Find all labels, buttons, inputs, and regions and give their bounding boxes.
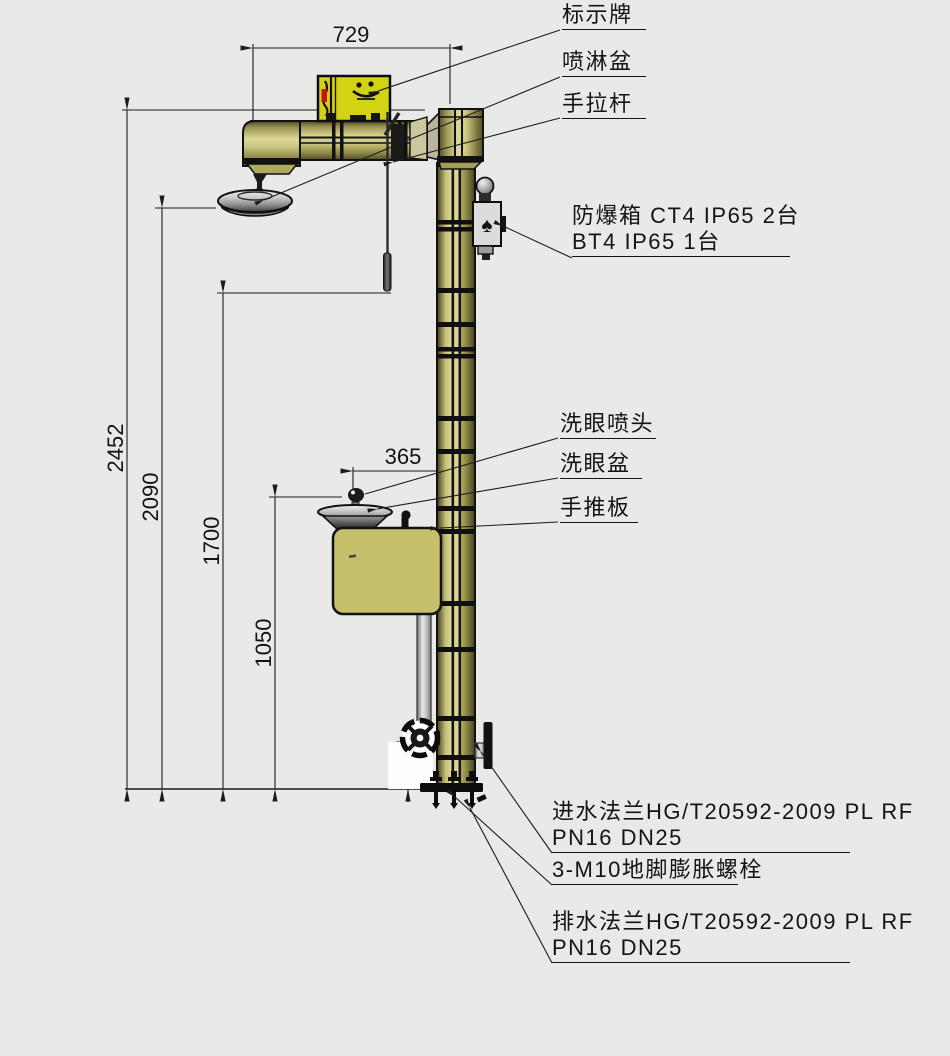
- dim-2090: [155, 208, 216, 789]
- shower-eyewash-drawing: 729 365 2452 2090 1700 1050 135: [0, 0, 950, 1056]
- support-column: [436, 162, 476, 789]
- label-shower-basin-text: 喷淋盆: [562, 49, 646, 75]
- inlet-flange: [475, 722, 493, 769]
- dim-365: [353, 467, 448, 491]
- label-drain-flange-line1: 排水法兰HG/T20592-2009 PL RF: [552, 909, 850, 935]
- label-eyewash-nozzle: 洗眼喷头: [560, 411, 656, 439]
- top-elbow: [427, 109, 483, 169]
- shower-elbow: [243, 121, 300, 196]
- spade-icon: ♠: [481, 214, 492, 237]
- leader-explosion-box: [503, 226, 572, 258]
- label-drain-flange: 排水法兰HG/T20592-2009 PL RF PN16 DN25: [552, 909, 850, 963]
- label-eyewash-basin: 洗眼盆: [560, 451, 642, 479]
- label-explosion-box: 防爆箱 CT4 IP65 2台 BT4 IP65 1台: [572, 203, 790, 257]
- label-anchor-bolt: 3-M10地脚膨胀螺栓: [552, 857, 738, 885]
- label-push-plate: 手推板: [560, 495, 638, 523]
- label-inlet-flange-line1: 进水法兰HG/T20592-2009 PL RF: [552, 799, 850, 825]
- base-plate: [420, 783, 483, 792]
- dim-text-2452: 2452: [103, 424, 128, 473]
- leader-inlet-flange: [481, 752, 552, 853]
- label-shower-basin: 喷淋盆: [562, 49, 646, 77]
- sign-red-mark: [322, 89, 328, 102]
- dim-text-2090: 2090: [138, 473, 163, 522]
- dim-1050: [269, 497, 342, 789]
- label-explosion-box-line1: 防爆箱 CT4 IP65 2台: [572, 203, 790, 229]
- leader-sign-plate: [378, 30, 560, 91]
- label-sign-plate-text: 标示牌: [562, 2, 646, 28]
- label-anchor-bolt-text: 3-M10地脚膨胀螺栓: [552, 857, 738, 883]
- push-plate: [333, 528, 441, 614]
- technical-drawing-canvas: 729 365 2452 2090 1700 1050 135: [0, 0, 950, 1056]
- label-inlet-flange-line2: PN16 DN25: [552, 825, 850, 851]
- leader-drain-flange: [470, 808, 552, 963]
- dim-text-1050: 1050: [251, 619, 276, 668]
- pull-rod: [384, 112, 405, 291]
- explosion-proof-box: ♠: [473, 178, 506, 261]
- label-pull-rod-text: 手拉杆: [562, 91, 646, 117]
- label-sign-plate: 标示牌: [562, 2, 646, 30]
- valve-handwheel: [403, 721, 441, 756]
- dim-text-1700: 1700: [199, 517, 224, 566]
- label-eyewash-nozzle-text: 洗眼喷头: [560, 411, 656, 437]
- label-explosion-box-line2: BT4 IP65 1台: [572, 229, 790, 255]
- label-drain-flange-line2: PN16 DN25: [552, 935, 850, 961]
- label-inlet-flange: 进水法兰HG/T20592-2009 PL RF PN16 DN25: [552, 799, 850, 853]
- label-pull-rod: 手拉杆: [562, 91, 646, 119]
- dim-text-365: 365: [385, 444, 422, 469]
- label-eyewash-basin-text: 洗眼盆: [560, 451, 642, 477]
- dim-text-729: 729: [333, 22, 370, 47]
- label-push-plate-text: 手推板: [560, 495, 638, 521]
- shower-head: [218, 190, 292, 216]
- sign-plate: [318, 76, 390, 121]
